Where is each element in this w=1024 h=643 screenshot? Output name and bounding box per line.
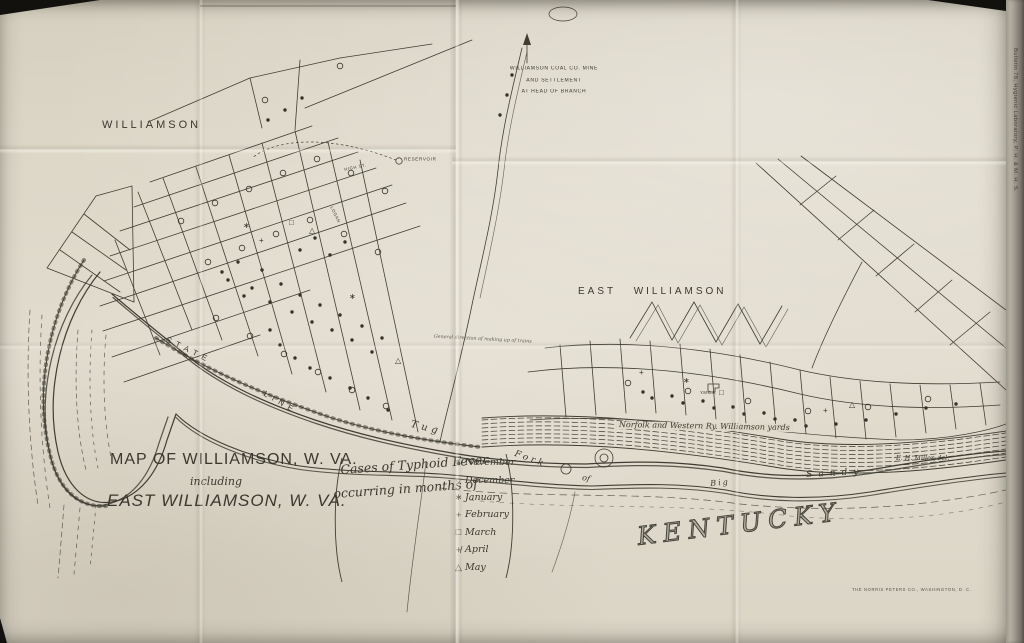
- map-title-line3: EAST WILLIAMSON, W. VA.: [107, 492, 347, 509]
- spine-caption: Bulletin 78, Hygienic Laboratory, P. H. …: [1012, 48, 1018, 192]
- map-title-line2: including: [190, 476, 242, 487]
- legend-month: April: [465, 544, 489, 555]
- legend-month: January: [465, 492, 502, 503]
- legend-item: +̸April: [452, 541, 515, 558]
- branch-arrow-icon: [523, 33, 531, 45]
- legend-item: ∗January: [452, 489, 515, 506]
- legend-item: +February: [452, 506, 515, 523]
- legend-items: ●November ○December ∗January +February □…: [452, 454, 515, 576]
- mine-note-line3: AT HEAD OF BRANCH: [500, 89, 608, 94]
- svg-text:△: △: [395, 356, 402, 365]
- legend-item: ●November: [452, 454, 515, 471]
- svg-text:+: +: [823, 406, 828, 415]
- svg-text:+: +: [639, 368, 644, 377]
- asterisk-icon: ∗: [452, 492, 465, 503]
- svg-text:□: □: [719, 388, 724, 397]
- open-circle-icon: ○: [452, 475, 465, 485]
- river-label-big: Big: [710, 478, 730, 488]
- printer-imprint: THE NORRIS PETERS CO., WASHINGTON, D. C.: [852, 588, 971, 592]
- mine-note-line1: WILLIAMSON COAL CO. MINE: [500, 66, 608, 71]
- slashed-plus-icon: +̸: [452, 545, 465, 555]
- branch-creek: [440, 7, 577, 442]
- svg-text:△: △: [849, 400, 856, 409]
- legend-month: May: [465, 562, 486, 573]
- williamson-label: WILLIAMSON: [102, 120, 201, 131]
- svg-text:+: +: [259, 236, 264, 245]
- photo-background: ∗∗∗ +++ □□ △△△ WILLIAMSON EAST WILLIAMSO…: [0, 0, 1024, 643]
- book-spine-strip: Bulletin 78, Hygienic Laboratory, P. H. …: [1006, 0, 1024, 643]
- river-label-of: of: [581, 474, 590, 483]
- legend-month: November: [465, 457, 515, 468]
- east-williamson-label: EAST WILLIAMSON: [578, 287, 727, 297]
- svg-text:□: □: [289, 218, 294, 227]
- svg-text:∗: ∗: [243, 221, 250, 230]
- delineator-credit: E. H. Miller, del.: [896, 455, 949, 461]
- svg-text:∗: ∗: [349, 292, 356, 301]
- legend-month: December: [465, 475, 514, 486]
- legend-month: March: [465, 527, 496, 538]
- mudflat-dashes: [28, 310, 112, 578]
- plus-icon: +: [452, 510, 465, 520]
- mine-note-line2: AND SETTLEMENT: [500, 78, 608, 83]
- roads-upper-right: [756, 156, 1006, 390]
- legend-item: △May: [452, 558, 515, 575]
- legend-item: □March: [452, 524, 515, 541]
- filled-circle-icon: ●: [452, 458, 465, 468]
- ymca-label: Y.M.C.A.: [700, 391, 716, 395]
- open-square-icon: □: [452, 527, 465, 537]
- svg-text:△: △: [309, 226, 316, 235]
- reservoir-label: RESERVOIR: [404, 157, 437, 162]
- open-triangle-icon: △: [452, 562, 465, 573]
- legend-month: February: [465, 509, 509, 520]
- svg-text:∗: ∗: [683, 376, 690, 385]
- map-sheet: ∗∗∗ +++ □□ △△△ WILLIAMSON EAST WILLIAMSO…: [0, 0, 1006, 643]
- map-title-line1: MAP OF WILLIAMSON, W. VA.: [110, 452, 358, 468]
- case-symbols: ∗∗∗ +++ □□ △△△: [178, 63, 958, 428]
- typhoid-legend: Cases of Typhoid Fever occurring in mont…: [330, 452, 518, 590]
- legend-item: ○December: [452, 471, 515, 488]
